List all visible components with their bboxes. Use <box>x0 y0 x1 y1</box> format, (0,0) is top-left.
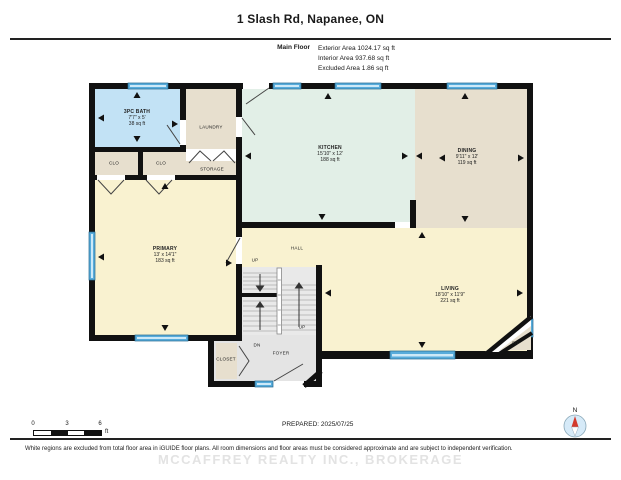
header-divider <box>10 38 611 40</box>
wall-left <box>89 83 95 341</box>
laundry-room <box>186 89 236 149</box>
glass-line <box>392 354 453 357</box>
opening-bath <box>180 120 186 145</box>
opening-entry-top <box>243 83 269 89</box>
glass-line <box>275 85 299 87</box>
glass-line <box>449 85 495 87</box>
scale-tick-6: 6 <box>98 421 101 427</box>
label-dining: DINING 9'11" x 12' 119 sq ft <box>456 148 479 166</box>
opening-clo-right <box>147 175 175 180</box>
scale-tick-3: 3 <box>65 421 68 427</box>
scale-segment <box>34 431 51 435</box>
prepared-date: PREPARED: 2025/07/25 <box>282 421 353 428</box>
page-title: 1 Slash Rd, Napanee, ON <box>0 12 621 26</box>
label-closet: CLOSET <box>216 357 236 362</box>
wall-stair-divider <box>242 293 277 297</box>
opening-primary <box>236 237 242 264</box>
wall-kitchen-bottom <box>242 222 395 228</box>
room-area: 221 sq ft <box>435 298 465 304</box>
brokerage-watermark: MCCAFFREY REALTY INC., BROKERAGE <box>158 452 463 467</box>
room-area: 183 sq ft <box>153 258 177 264</box>
excluded-area: Excluded Area 1.86 sq ft <box>318 64 395 74</box>
label-stairs-up-right: UP <box>299 325 306 330</box>
room-area: 38 sq ft <box>124 121 150 127</box>
wall-foyer-left <box>208 335 214 387</box>
label-clo-right: CLO <box>156 161 166 166</box>
scale-tick-0: 0 <box>31 421 34 427</box>
scale-segment <box>84 431 101 435</box>
label-stairs-down: DN <box>253 343 260 348</box>
scale-bar <box>33 430 102 436</box>
compass-north-label: N <box>573 407 578 414</box>
wall-dining-stub <box>410 200 416 228</box>
label-bath: 3PC BATH 7'7" x 5' 38 sq ft <box>124 109 150 127</box>
room-area: 119 sq ft <box>456 160 479 166</box>
floor-plan: 3PC BATH 7'7" x 5' 38 sq ft LAUNDRY CLO … <box>85 80 537 392</box>
label-hall: HALL <box>291 246 303 251</box>
laundry-door-zone <box>186 149 236 161</box>
floor-plan-page: 1 Slash Rd, Napanee, ON Main Floor Exter… <box>0 0 621 480</box>
opening-clo-left <box>97 175 125 180</box>
glass-line <box>337 85 379 87</box>
label-storage: STORAGE <box>200 167 224 172</box>
glass-line <box>257 383 271 385</box>
wall-bath-bottom <box>89 147 186 152</box>
exterior-area: Exterior Area 1024.17 sq ft <box>318 44 395 54</box>
scale-segment <box>68 431 85 435</box>
glass-line <box>91 234 93 278</box>
label-foyer: FOYER <box>273 351 290 356</box>
label-laundry: LAUNDRY <box>199 125 222 130</box>
label-clo-left: CLO <box>109 161 119 166</box>
floor-plan-drawing <box>85 80 537 392</box>
glass-line <box>130 85 166 87</box>
label-fireplace: F/P <box>512 341 520 346</box>
floor-label: Main Floor <box>240 44 310 51</box>
stair-rail <box>277 268 282 334</box>
label-stairs-up-top: UP <box>252 258 259 263</box>
wall-foyer-right <box>316 265 322 387</box>
area-summary: Exterior Area 1024.17 sq ft Interior Are… <box>318 44 395 74</box>
label-kitchen: KITCHEN 15'10" x 12' 188 sq ft <box>317 145 343 163</box>
scale-segment <box>51 431 68 435</box>
scale-unit: ft <box>105 429 108 435</box>
label-primary: PRIMARY 13' x 14'1" 183 sq ft <box>153 246 177 264</box>
label-living: LIVING 18'10" x 11'9" 221 sq ft <box>435 286 465 304</box>
opening-laundry <box>236 117 242 137</box>
footer-divider <box>10 438 611 440</box>
compass-rose: N <box>561 404 589 440</box>
room-area: 188 sq ft <box>317 157 343 163</box>
glass-line <box>137 337 186 339</box>
interior-area: Interior Area 937.68 sq ft <box>318 54 395 64</box>
opening-front-door <box>273 381 304 387</box>
